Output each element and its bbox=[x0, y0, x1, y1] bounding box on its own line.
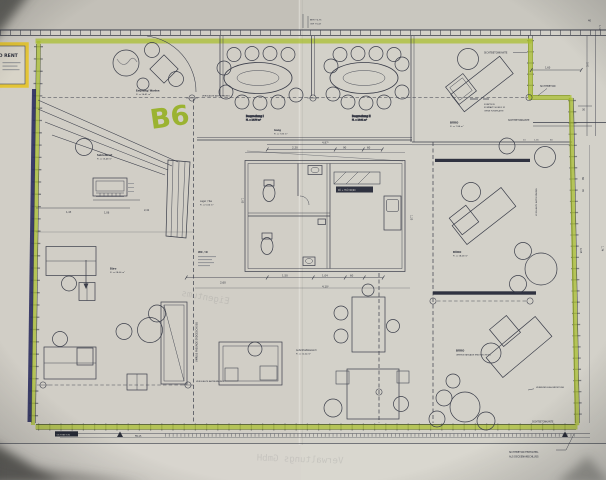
floor-plan-photo: Eigentums Verwaltungs GmbH bbox=[0, 0, 606, 480]
photo-vignette bbox=[0, 0, 606, 480]
floor-plan-svg: Eigentums Verwaltungs GmbH bbox=[0, 0, 606, 480]
